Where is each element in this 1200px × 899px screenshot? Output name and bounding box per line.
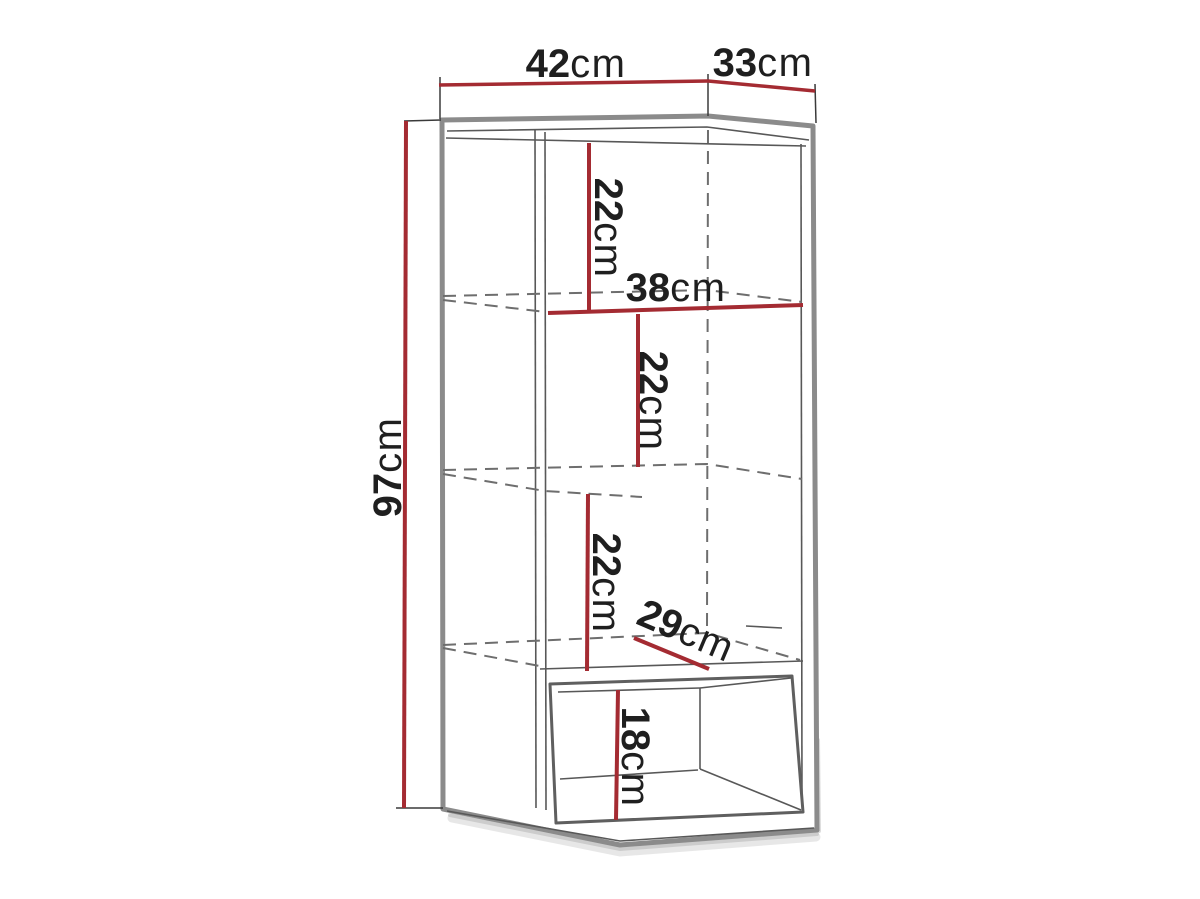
shelf-spacing-1-label: 22cm <box>586 178 630 279</box>
shelf-1-back-line <box>443 290 802 302</box>
width-label: 42cm <box>526 42 627 86</box>
cabinet-dimension-diagram: 42cm 33cm 97cm 22cm 38cm 22cm 22cm 29cm … <box>0 0 1200 899</box>
niche-height-label: 18cm <box>613 707 657 808</box>
diagram-canvas: 42cm 33cm 97cm 22cm 38cm 22cm 22cm 29cm … <box>0 0 1200 899</box>
open-niche <box>550 676 803 823</box>
shelf-spacing-2-label: 22cm <box>631 351 675 452</box>
niche-ceiling-edge <box>558 688 700 692</box>
depth-label: 33cm <box>713 41 814 85</box>
shelf-2-back-line <box>443 464 802 479</box>
niche-frame <box>550 676 803 823</box>
niche-floor-back-edge <box>700 769 801 810</box>
shelf-1-front-line <box>443 300 546 312</box>
shelf-3-front-line <box>443 648 545 667</box>
interior-back-corner-line <box>707 130 708 633</box>
shelf-3-back-line <box>443 633 800 660</box>
shelf-width-label: 38cm <box>626 266 727 310</box>
height-label: 97cm <box>366 417 410 518</box>
shelf-2-front-line <box>443 474 642 497</box>
shelf-spacing-3-label: 22cm <box>584 533 628 634</box>
